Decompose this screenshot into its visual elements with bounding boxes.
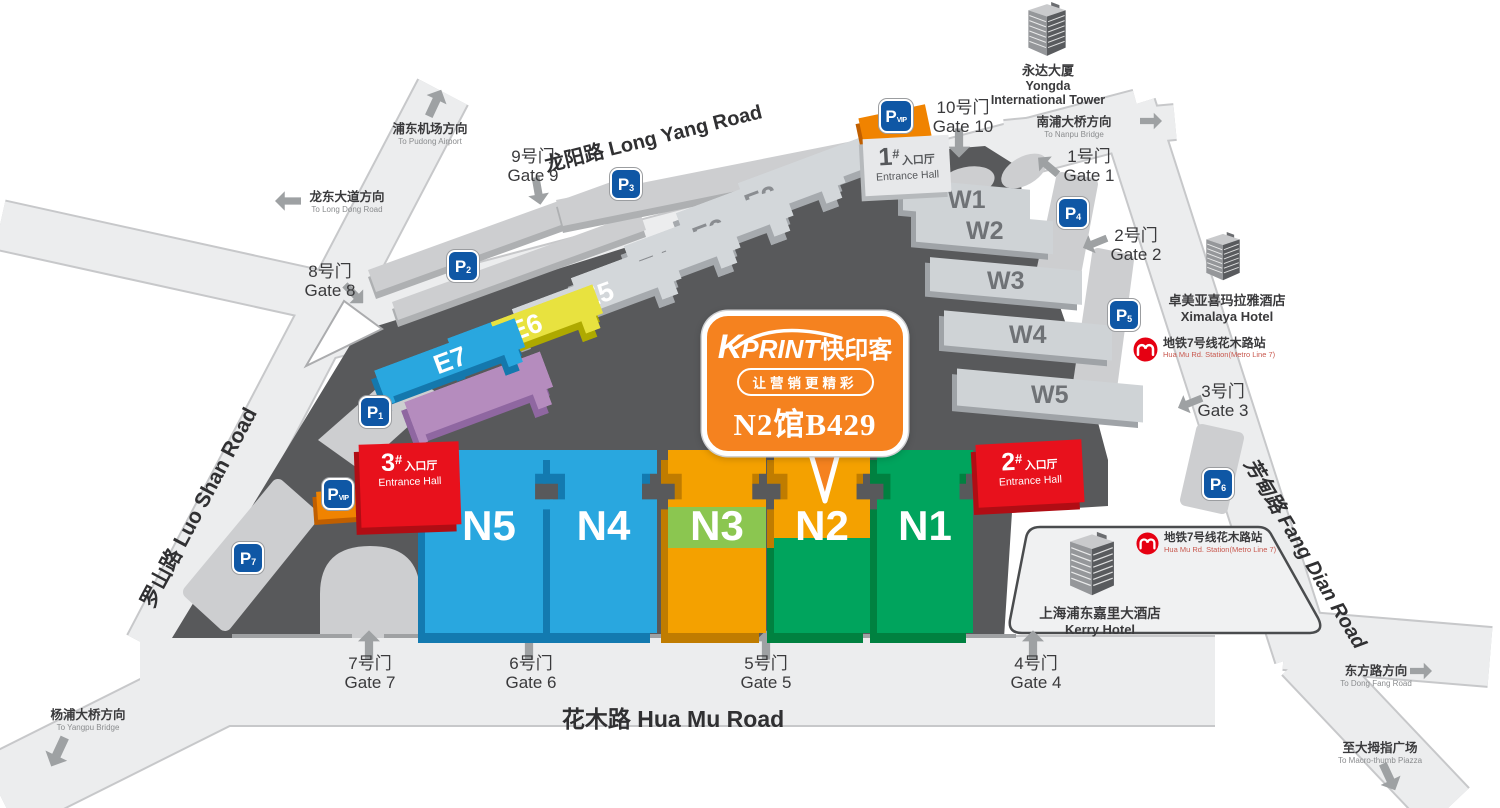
parking-p3-icon: P3 — [610, 168, 642, 200]
yongda-tower-icon — [1012, 2, 1082, 60]
hall-n4: N4 — [550, 450, 657, 633]
hall-n3: N3 — [668, 450, 766, 633]
parking-p4-icon: P4 — [1057, 197, 1089, 229]
callout-tagline: 让营销更精彩 — [737, 368, 874, 396]
parking-p2-icon: P2 — [447, 250, 479, 282]
long-dong-arrow-icon — [275, 189, 301, 213]
parking-p6-icon: P6 — [1202, 468, 1234, 500]
gate-1-label: 1号门Gate 1 — [1044, 147, 1134, 185]
gate-3-label: 3号门Gate 3 — [1178, 382, 1268, 420]
entrance-hall-2: 2#入口厅 Entrance Hall — [975, 439, 1084, 507]
direction-pudong-airport: 浦东机场方向To Pudong Airport — [370, 118, 490, 146]
parking-p5-icon: P5 — [1108, 299, 1140, 331]
callout-bubble: KPRINT快印客 让营销更精彩 N2馆B429 — [702, 311, 908, 456]
metro-logo-icon — [1136, 532, 1159, 555]
direction-yangpu-bridge: 杨浦大桥方向To Yangpu Bridge — [28, 704, 148, 732]
gate-8-label: 8号门Gate 8 — [285, 262, 375, 300]
direction-dong-fang-road: 东方路方向To Dong Fang Road — [1316, 660, 1436, 688]
parking-p7-icon: P7 — [232, 542, 264, 574]
direction-nanpu-bridge: 南浦大桥方向To Nanpu Bridge — [1014, 111, 1134, 139]
entrance-hall-1: 1#入口厅 Entrance Hall — [863, 135, 952, 196]
ximalaya-hotel-icon — [1192, 232, 1254, 284]
expo-venue-map: 龙阳路 Long Yang Road 花木路 Hua Mu Road 罗山路 L… — [0, 0, 1500, 808]
kprint-callout: KPRINT快印客 让营销更精彩 N2馆B429 — [702, 311, 908, 456]
gate-5-label: 5号门Gate 5 — [721, 654, 811, 692]
road-label-hua-mu: 花木路 Hua Mu Road — [523, 700, 823, 734]
parking-p1-icon: P1 — [359, 396, 391, 428]
parking-vip-north-icon: PVIP — [879, 99, 913, 133]
direction-long-dong-road: 龙东大道方向To Long Dong Road — [302, 186, 392, 214]
gate-6-label: 6号门Gate 6 — [486, 654, 576, 692]
callout-booth-number: N2馆B429 — [707, 399, 903, 444]
gate-10-label: 10号门Gate 10 — [918, 98, 1008, 136]
kerry-hotel-icon — [1053, 530, 1131, 602]
parking-vip-west-icon: PVIP — [322, 478, 354, 510]
direction-macro-thumb-piazza: 至大拇指广场To Macro-thumb Piazza — [1320, 737, 1440, 765]
metro-logo-icon — [1133, 337, 1158, 362]
gate-4-label: 4号门Gate 4 — [991, 654, 1081, 692]
gate-7-label: 7号门Gate 7 — [325, 654, 415, 692]
gate-9-label: 9号门Gate 9 — [488, 147, 578, 185]
metro-station-east: 地铁7号线花木路站Hua Mu Rd. Station(Metro Line 7… — [1133, 337, 1275, 362]
nanpu-arrow-icon — [1140, 108, 1162, 134]
entrance-hall-3: 3#入口厅 Entrance Hall — [359, 441, 462, 527]
kprint-logo: KPRINT快印客 — [707, 329, 903, 365]
gate-2-label: 2号门Gate 2 — [1091, 226, 1181, 264]
kerry-hotel-label: 上海浦东嘉里大酒店 Kerry Hotel — [1010, 602, 1190, 637]
metro-station-kerry: 地铁7号线花木路站Hua Mu Rd. Station(Metro Line 7… — [1136, 532, 1276, 555]
ximalaya-hotel-label: 卓美亚喜玛拉雅酒店 Ximalaya Hotel — [1127, 290, 1327, 324]
hall-n1: N1 — [877, 450, 973, 633]
